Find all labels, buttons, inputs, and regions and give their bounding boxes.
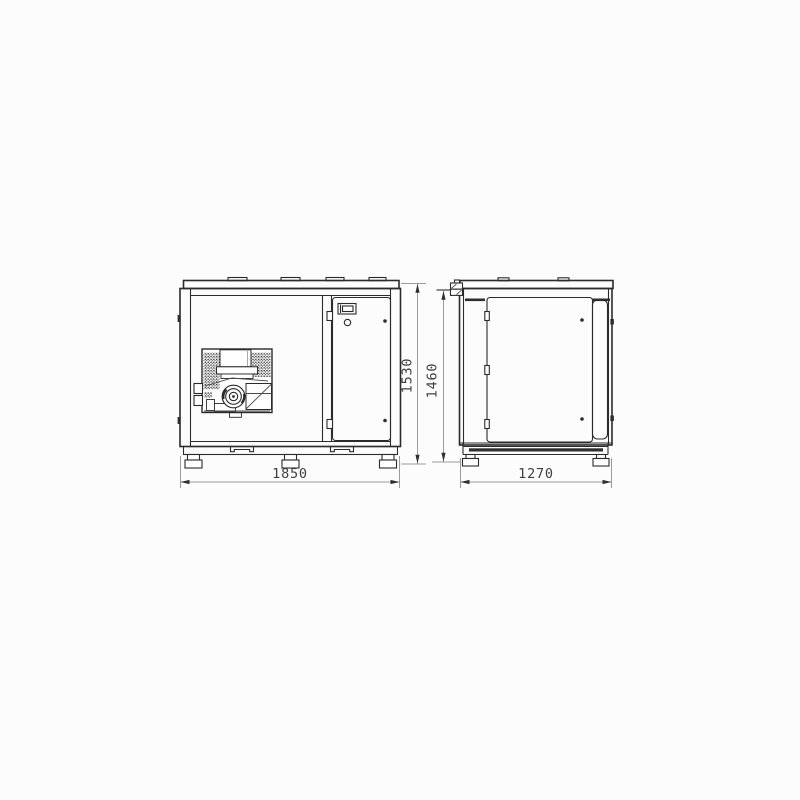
door-hinge xyxy=(485,366,490,375)
foot xyxy=(463,455,479,467)
front-view xyxy=(178,278,401,469)
dimension-side-depth: 1270 xyxy=(461,458,612,488)
door-lock xyxy=(580,318,584,322)
door-lock xyxy=(383,419,387,423)
foot xyxy=(185,455,202,469)
side-fitting xyxy=(194,396,203,406)
cabinet-body xyxy=(460,289,613,446)
door-hinge xyxy=(327,312,333,321)
side-door xyxy=(487,298,593,443)
drawing-canvas: 1850 1270 1530 1460 xyxy=(0,0,800,800)
door-lock xyxy=(580,417,584,421)
front-door xyxy=(333,298,391,441)
door-lock xyxy=(383,319,387,323)
door-hinge xyxy=(485,420,490,429)
foot xyxy=(380,455,397,469)
dim-label-side-depth: 1270 xyxy=(518,466,554,482)
foot xyxy=(593,455,609,467)
door-hinge xyxy=(327,420,333,429)
top-cap xyxy=(460,281,613,289)
technical-drawing: 1850 1270 1530 1460 xyxy=(0,0,800,800)
base-frame xyxy=(460,443,613,466)
dimension-overall-height: 1530 xyxy=(400,284,427,465)
dimension-body-height: 1460 xyxy=(425,290,462,462)
side-view xyxy=(451,278,614,466)
side-fitting xyxy=(194,384,203,394)
base-frame xyxy=(184,447,398,469)
dim-label-front-width: 1850 xyxy=(272,466,308,482)
top-cap xyxy=(184,281,400,289)
door-hinge xyxy=(485,312,490,321)
start-button xyxy=(344,319,350,325)
dim-label-overall-height: 1530 xyxy=(400,358,416,394)
control-display xyxy=(338,304,356,315)
dim-label-body-height: 1460 xyxy=(425,363,441,399)
inspection-window xyxy=(194,349,272,417)
